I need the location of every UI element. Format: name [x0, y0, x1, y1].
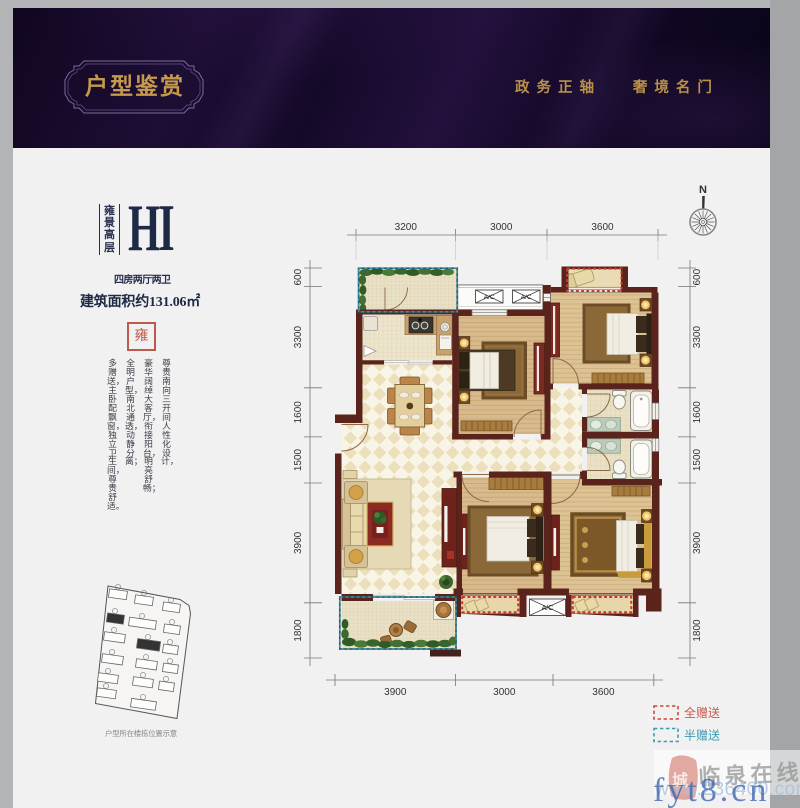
svg-text:A/C: A/C: [521, 294, 532, 301]
svg-text:1500: 1500: [293, 448, 304, 471]
svg-text:600: 600: [692, 268, 703, 285]
svg-text:fyt8.cn: fyt8.cn: [653, 772, 769, 808]
svg-text:N: N: [699, 184, 707, 196]
svg-text:A/C: A/C: [542, 605, 554, 612]
svg-text:3900: 3900: [384, 687, 407, 698]
svg-text:1500: 1500: [692, 448, 703, 471]
svg-text:3900: 3900: [692, 531, 703, 554]
svg-text:半赠送: 半赠送: [684, 728, 720, 743]
svg-text:1800: 1800: [293, 619, 304, 642]
svg-text:1800: 1800: [692, 619, 703, 642]
svg-text:3000: 3000: [490, 222, 513, 233]
svg-text:全赠送: 全赠送: [684, 705, 720, 720]
svg-text:3300: 3300: [293, 326, 304, 349]
svg-text:600: 600: [293, 268, 304, 285]
svg-text:1600: 1600: [293, 401, 304, 424]
svg-text:3600: 3600: [592, 687, 615, 698]
svg-text:3300: 3300: [692, 326, 703, 349]
svg-text:3900: 3900: [293, 531, 304, 554]
svg-text:1600: 1600: [692, 401, 703, 424]
svg-text:3200: 3200: [395, 222, 418, 233]
svg-text:A/C: A/C: [484, 294, 495, 301]
svg-text:3600: 3600: [591, 222, 614, 233]
svg-text:3000: 3000: [493, 687, 516, 698]
